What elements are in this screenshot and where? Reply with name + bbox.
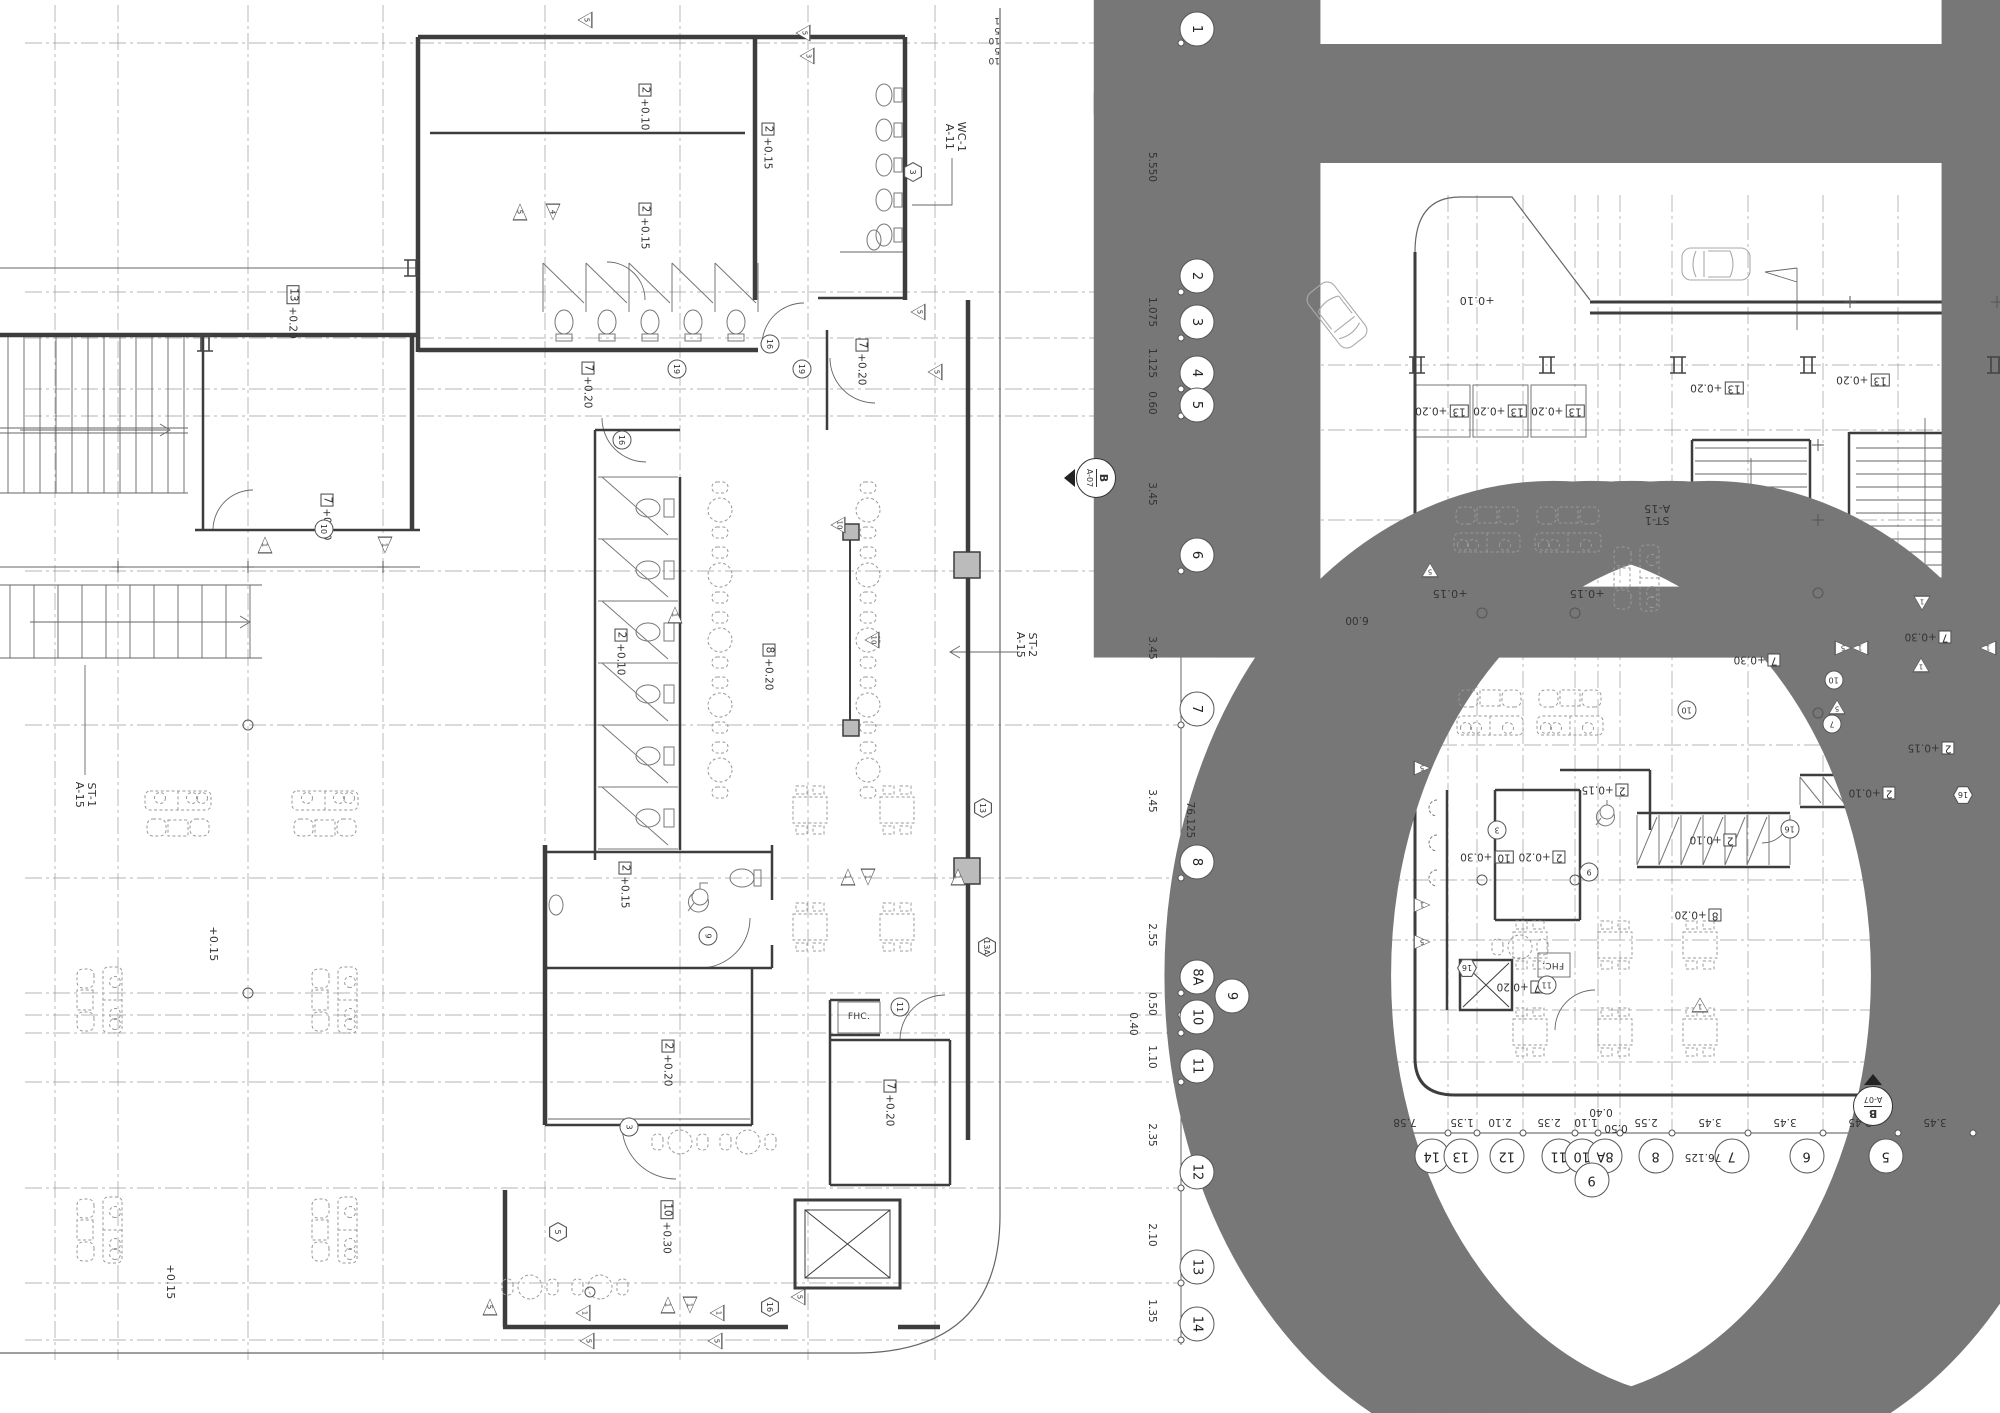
door-11: 11 xyxy=(891,998,910,1017)
r-level-010: +0.10 xyxy=(1459,294,1494,306)
room-tag-2-010b: 2+0.10 xyxy=(615,629,628,676)
room-tag-2-015b: 2+0.15 xyxy=(639,203,652,250)
tri-1j: 1 xyxy=(710,1305,725,1322)
grid-bubble-9: 9 xyxy=(1215,979,1250,1014)
hex-13A: 13A xyxy=(978,937,996,957)
r-door-9: 9 xyxy=(1580,863,1599,882)
r-tri-5d: 5 xyxy=(1414,935,1431,950)
tri-5d: 5 xyxy=(911,304,926,321)
r-tag-215b: 2+0.15 xyxy=(1908,742,1955,755)
dim-b235: 2.35 xyxy=(1537,1116,1560,1128)
room-tag-10-030: 10+0.30 xyxy=(661,1200,674,1254)
grid-bubble-2: 2 xyxy=(1180,259,1215,294)
section-marker-b: BA-07 xyxy=(1064,458,1116,498)
r-tri-1c: 1 xyxy=(1852,641,1869,656)
dim-1125: 1.125 xyxy=(1146,348,1158,378)
r-door-3: 3 xyxy=(1488,821,1507,840)
note-st1: ST-1 A-15 xyxy=(73,782,97,808)
grid-bubble-6: 6 xyxy=(1180,538,1215,573)
level-015a: +0.15 xyxy=(207,926,219,961)
dim-b76125: 76.125 xyxy=(1685,1151,1722,1163)
r-section-arrow-icon xyxy=(1864,1074,1882,1085)
door-3: 3 xyxy=(620,1118,639,1137)
dim-b135: 1.35 xyxy=(1450,1116,1473,1128)
r-tag-13d: 13+0.20 xyxy=(1690,382,1744,395)
section-arrow-icon xyxy=(1064,469,1075,487)
dim-b210: 2.10 xyxy=(1488,1116,1511,1128)
plan-linework xyxy=(0,0,2000,1413)
r-tag-720: 7+0.20 xyxy=(1497,981,1544,994)
grid-bubble-12: 12 xyxy=(1180,1155,1215,1190)
hex-3: 3 xyxy=(904,162,922,182)
tri-5i: 5 xyxy=(791,1289,806,1306)
r-riser-10b: 10 xyxy=(0,55,1000,65)
grid-bubble-11: 11 xyxy=(1180,1049,1215,1084)
dim-5550: 5.550 xyxy=(1146,152,1158,182)
grid-bubble-b13: 13 xyxy=(1444,1139,1479,1174)
tri-1g: 1 xyxy=(576,1305,591,1322)
dim-110: 1.10 xyxy=(1146,1045,1158,1068)
level-015b: +0.15 xyxy=(164,1264,176,1299)
grid-bubble-b12: 12 xyxy=(1490,1139,1525,1174)
dim-b050: 0.50 xyxy=(1604,1122,1627,1134)
room-tag-7-020a: 7+0.20 xyxy=(582,362,595,409)
tri-4: 4 xyxy=(546,204,561,221)
r-note-st1: ST-1 A-15 xyxy=(1644,502,1670,526)
grid-bubble-8A: 8A xyxy=(1180,960,1215,995)
tri-1b: 1 xyxy=(378,537,393,554)
grid-bubble-b9: 9 xyxy=(1575,1163,1610,1198)
r-riser-10a: 10 xyxy=(0,35,1000,45)
r-tag-210a: 2+0.10 xyxy=(1690,834,1737,847)
dim-b040: 0.40 xyxy=(1589,1106,1612,1118)
grid-bubble-b6: 6 xyxy=(1790,1139,1825,1174)
r-hex-16b: 16 xyxy=(1457,959,1477,977)
hex-5: 5 xyxy=(549,1222,567,1242)
label-fhc: FHC. xyxy=(848,1011,870,1023)
tri-5f: 5 xyxy=(580,1333,595,1350)
dim-235: 2.35 xyxy=(1146,1123,1158,1146)
hex-16: 16 xyxy=(761,1297,779,1317)
tri-1a: 1 xyxy=(258,537,273,554)
r-tag-13c: 13+0.20 xyxy=(1531,405,1585,418)
r-tri-1b: 1 xyxy=(1913,658,1930,673)
door-19b: 19 xyxy=(668,360,687,379)
stair-riser-10: 10 xyxy=(0,0,5,1010)
r-tag-210b: 2+0.10 xyxy=(1849,787,1896,800)
tri-5h: 5 xyxy=(483,1299,498,1316)
tri-1i: 1 xyxy=(683,1297,698,1314)
dim-345c: 3.45 xyxy=(1146,789,1158,812)
grid-bubble-5: 5 xyxy=(1180,388,1215,423)
tri-1c: 1 xyxy=(668,607,683,624)
tri-1f: 1 xyxy=(951,869,966,886)
r-door-11: 11 xyxy=(1538,976,1557,995)
r-riser-1: 1 xyxy=(0,15,1000,25)
tri-5c: 5 xyxy=(513,204,528,221)
dim-345a: 3.45 xyxy=(1146,482,1158,505)
r-tri-1d: 1 xyxy=(1980,641,1997,656)
r-tag-13b: 13+0.20 xyxy=(1473,405,1527,418)
r-tag-730a: 7+0.30 xyxy=(1734,654,1781,667)
dim-255: 2.55 xyxy=(1146,923,1158,946)
grid-bubble-b8: 8 xyxy=(1639,1139,1674,1174)
door-10: 10 xyxy=(315,520,334,539)
r-tag-730b: 7+0.30 xyxy=(1905,631,1952,644)
grid-bubble-3: 3 xyxy=(1180,305,1215,340)
r-dim-600: 6.00 xyxy=(1345,614,1368,626)
dim-345b: 3.45 xyxy=(1146,636,1158,659)
r-label-fhc: FHC. xyxy=(1542,959,1564,971)
dim-b345b: 3.45 xyxy=(1773,1116,1796,1128)
room-tag-2-015c: 2+0.15 xyxy=(619,862,632,909)
r-tag-1030: 10+0.30 xyxy=(1460,851,1514,864)
r-door-16: 16 xyxy=(1781,820,1800,839)
tri-1e: 1 xyxy=(861,869,876,886)
note-st2: ST-2 A-15 xyxy=(1014,632,1038,658)
door-16a: 16 xyxy=(761,335,780,354)
r-hex-16a: 16 xyxy=(1953,786,1973,804)
dim-b345d: 3.45 xyxy=(1923,1116,1946,1128)
grid-bubble-b5: 5 xyxy=(1869,1139,1904,1174)
grid-bubble-14: 14 xyxy=(1180,1307,1215,1342)
door-9: 9 xyxy=(699,927,718,946)
r-riser-5b: 5 xyxy=(0,45,1000,55)
r-tag-215a: 2+0.15 xyxy=(1582,784,1629,797)
r-section-marker-b: BA-07 xyxy=(1853,1074,1893,1126)
dim-758: 7.58 xyxy=(1393,1116,1416,1128)
r-tag-13a: 13+0.20 xyxy=(1415,405,1469,418)
room-tag-8-020: 8+0.20 xyxy=(763,644,776,691)
dim-135: 1.35 xyxy=(1146,1299,1158,1322)
r-tri-5e: 5 xyxy=(1422,563,1439,578)
tri-5e: 5 xyxy=(928,364,943,381)
hex-13: 13 xyxy=(974,798,992,818)
grid-bubble-13: 13 xyxy=(1180,1250,1215,1285)
r-door-10b: 10 xyxy=(1678,701,1697,720)
r-tag-13e: 13+0.20 xyxy=(1836,374,1890,387)
r-tri-5b: 5 xyxy=(1829,700,1846,715)
dim-210: 2.10 xyxy=(1146,1223,1158,1246)
r-riser-5a: 5 xyxy=(0,25,1000,35)
r-tri-1e: 1 xyxy=(1414,898,1431,913)
tri-1d: 1 xyxy=(841,869,856,886)
room-tag-13-020: 13+0.20 xyxy=(287,285,300,339)
room-tag-7-020c: 7+0.20 xyxy=(884,1080,897,1127)
floorplan-sheet: 1 2 3 4 5 6 7 8 8A 10 9 11 12 13 14 5.55… xyxy=(0,0,2000,1413)
grid-bubble-1: 1 xyxy=(1180,12,1215,47)
r-tri-5a: 5 xyxy=(1835,641,1852,656)
dim-050: 0.50 xyxy=(1146,992,1158,1015)
fixtures xyxy=(543,0,2000,1413)
room-tag-2-010a: 2+0.10 xyxy=(639,84,652,131)
room-tag-2-020: 2+0.20 xyxy=(662,1040,675,1087)
grid-bubble-7: 7 xyxy=(1180,692,1215,727)
r-level-015b: +0.15 xyxy=(1569,587,1604,599)
grid-bubble-4: 4 xyxy=(1180,356,1215,391)
tri-10a: 10 xyxy=(831,517,846,534)
dim-060: 0.60 xyxy=(1146,391,1158,414)
r-tag-220: 2+0.20 xyxy=(1519,851,1566,864)
r-tri-1a: 1 xyxy=(1914,596,1931,611)
r-tag-820: 8+0.20 xyxy=(1675,909,1722,922)
r-door-10a: 10 xyxy=(1825,671,1844,690)
door-16b: 16 xyxy=(613,431,632,450)
room-tag-2-015a: 2+0.15 xyxy=(762,123,775,170)
tri-10b: 10 xyxy=(865,632,880,649)
tri-1h: 1 xyxy=(661,1297,676,1314)
r-level-015a: +0.15 xyxy=(1432,587,1467,599)
dim-76125: 76.125 xyxy=(1184,802,1196,839)
r-tri-5c: 5 xyxy=(1414,761,1431,776)
tri-5g: 5 xyxy=(708,1333,723,1350)
grid-bubble-8: 8 xyxy=(1180,845,1215,880)
room-tag-7-020b: 7+0.20 xyxy=(856,339,869,386)
dim-1075: 1.075 xyxy=(1146,297,1158,327)
dim-040: 0.40 xyxy=(1127,1012,1139,1035)
grid-bubble-10: 10 xyxy=(1180,1000,1215,1035)
note-wc1: WC-1 A-11 xyxy=(943,122,967,153)
dim-b255: 2.55 xyxy=(1634,1116,1657,1128)
r-tri-1f: 1 xyxy=(1692,998,1709,1013)
door-19a: 19 xyxy=(793,360,812,379)
dim-b345a: 3.45 xyxy=(1698,1116,1721,1128)
